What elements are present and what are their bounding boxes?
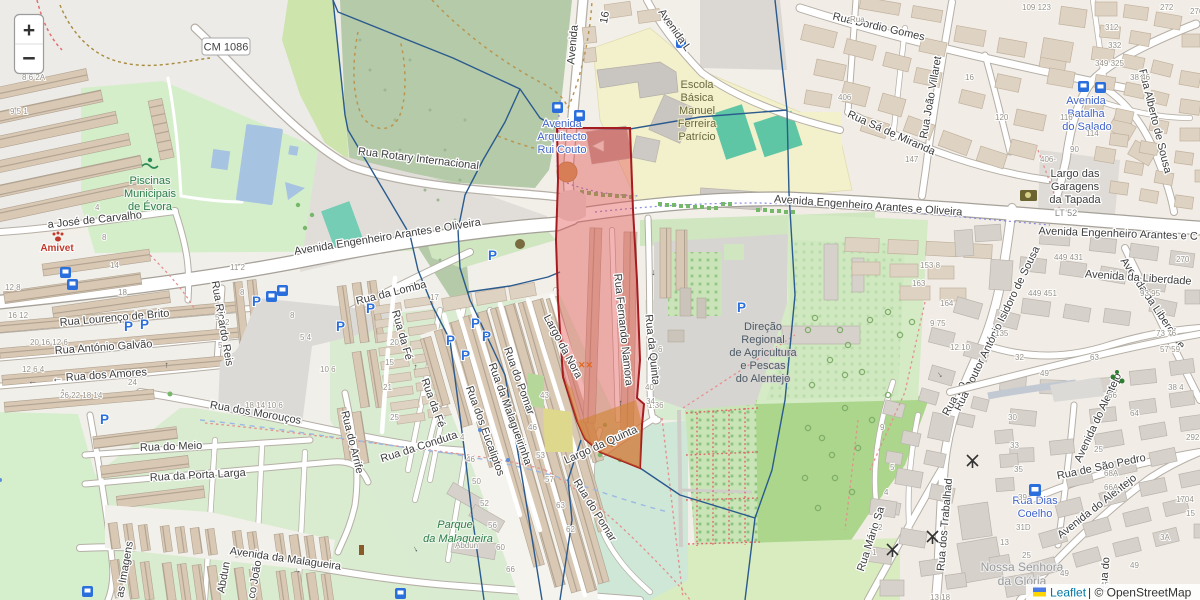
svg-text:12 8: 12 8: [5, 283, 21, 292]
svg-text:153 8: 153 8: [920, 261, 941, 270]
svg-text:5: 5: [218, 341, 223, 350]
svg-text:Arquitecto: Arquitecto: [537, 131, 587, 143]
svg-text:25: 25: [1022, 551, 1031, 560]
svg-text:120: 120: [995, 113, 1009, 122]
svg-text:12 6 4: 12 6 4: [22, 365, 45, 374]
svg-text:4: 4: [95, 203, 100, 212]
svg-text:Rua do Meio: Rua do Meio: [140, 440, 203, 454]
svg-text:56: 56: [488, 521, 497, 530]
svg-text:38 46: 38 46: [1130, 73, 1151, 82]
svg-text:e Pescas: e Pescas: [740, 360, 786, 372]
svg-text:Patrício: Patrício: [678, 131, 715, 143]
svg-text:P: P: [252, 294, 261, 309]
svg-text:13 18: 13 18: [930, 593, 951, 600]
svg-text:114: 114: [1086, 129, 1099, 138]
svg-text:P: P: [471, 316, 480, 331]
svg-text:→: →: [408, 362, 419, 373]
svg-text:Regional: Regional: [741, 334, 784, 346]
svg-text:Municipais: Municipais: [124, 188, 176, 200]
svg-text:P: P: [461, 348, 470, 363]
svg-text:9 75: 9 75: [930, 319, 946, 328]
svg-text:9 5 1: 9 5 1: [10, 107, 28, 116]
svg-text:38 4: 38 4: [1168, 383, 1184, 392]
svg-text:63: 63: [1090, 353, 1099, 362]
svg-text:62: 62: [566, 525, 575, 534]
svg-text:LT 52: LT 52: [1055, 208, 1077, 218]
svg-text:→: →: [160, 361, 170, 370]
svg-text:31D: 31D: [1016, 523, 1031, 532]
svg-text:312: 312: [1105, 23, 1119, 32]
svg-text:32: 32: [1015, 353, 1024, 362]
svg-text:6: 6: [658, 345, 663, 354]
svg-text:→: →: [292, 565, 301, 575]
svg-text:18 14 10 6: 18 14 10 6: [245, 401, 283, 410]
svg-text:93 95: 93 95: [1140, 289, 1161, 298]
svg-text:1704: 1704: [1176, 495, 1194, 504]
svg-text:49: 49: [1060, 569, 1069, 578]
svg-text:2: 2: [225, 318, 230, 327]
svg-text:P: P: [140, 317, 149, 332]
svg-text:Ferreira: Ferreira: [678, 118, 717, 130]
svg-text:109 123: 109 123: [1022, 3, 1051, 12]
svg-text:57: 57: [545, 475, 554, 484]
svg-text:34: 34: [646, 397, 655, 406]
svg-text:→: →: [650, 268, 660, 277]
svg-text:60: 60: [496, 543, 505, 552]
svg-text:272: 272: [1160, 3, 1174, 12]
svg-text:CM 1086: CM 1086: [204, 42, 249, 54]
svg-text:Direção: Direção: [744, 321, 782, 333]
svg-text:35: 35: [1014, 465, 1023, 474]
svg-text:25: 25: [1094, 445, 1103, 454]
svg-text:P: P: [124, 319, 133, 334]
svg-text:Rua: Rua: [850, 15, 865, 24]
svg-text:Nossa Senhora: Nossa Senhora: [981, 560, 1064, 574]
svg-text:Abdun: Abdun: [455, 541, 478, 550]
svg-text:P: P: [100, 412, 109, 427]
svg-text:→: →: [614, 399, 624, 408]
svg-text:20: 20: [390, 338, 399, 347]
svg-text:P: P: [482, 329, 491, 344]
svg-text:Avenida: Avenida: [1066, 95, 1106, 107]
svg-text:16 12: 16 12: [8, 311, 29, 320]
svg-text:25: 25: [390, 413, 399, 422]
svg-text:26 22 18 14: 26 22 18 14: [60, 391, 103, 400]
svg-text:64: 64: [1130, 409, 1139, 418]
svg-text:116: 116: [1060, 113, 1073, 122]
svg-text:53: 53: [536, 451, 545, 460]
svg-text:449 451: 449 451: [1028, 289, 1057, 298]
svg-text:−: −: [22, 45, 35, 71]
svg-text:Leaflet: Leaflet: [1050, 586, 1087, 600]
svg-text:4: 4: [884, 488, 889, 497]
svg-text:Amivet: Amivet: [40, 243, 74, 254]
svg-text:8: 8: [240, 288, 245, 297]
svg-text:5: 5: [890, 463, 895, 472]
svg-text:30: 30: [1008, 413, 1017, 422]
svg-text:147: 147: [905, 155, 919, 164]
svg-text:276: 276: [1190, 7, 1200, 16]
svg-text:66: 66: [1108, 391, 1117, 400]
svg-text:332: 332: [1108, 41, 1122, 50]
svg-text:63: 63: [556, 501, 565, 510]
svg-text:16: 16: [965, 73, 974, 82]
svg-text:406-: 406-: [1040, 155, 1056, 164]
svg-text:20 16 12 6: 20 16 12 6: [30, 338, 68, 347]
svg-text:de Agricultura: de Agricultura: [729, 347, 797, 359]
svg-text:9: 9: [880, 423, 885, 432]
svg-text:406: 406: [838, 93, 852, 102]
svg-text:Garagens: Garagens: [1051, 181, 1100, 193]
svg-text:21: 21: [383, 383, 392, 392]
svg-text:66: 66: [506, 565, 515, 574]
svg-text:349 325: 349 325: [1095, 59, 1124, 68]
svg-text:da Tapada: da Tapada: [1049, 194, 1101, 206]
svg-text:P: P: [488, 248, 497, 263]
svg-text:8: 8: [290, 311, 295, 320]
svg-text:5: 5: [215, 313, 220, 322]
svg-text:68A: 68A: [1104, 469, 1119, 478]
svg-text:39: 39: [1018, 493, 1027, 502]
svg-text:40: 40: [645, 383, 654, 392]
svg-text:46: 46: [466, 455, 475, 464]
svg-text:P: P: [366, 301, 375, 316]
svg-text:do Alentejo: do Alentejo: [736, 373, 790, 385]
svg-text:14: 14: [110, 261, 119, 270]
svg-text:270: 270: [1176, 255, 1190, 264]
svg-text:Básica: Básica: [680, 92, 714, 104]
svg-text:Parque: Parque: [437, 519, 472, 531]
svg-text:de Évora: de Évora: [128, 200, 173, 213]
svg-text:11 2: 11 2: [230, 263, 246, 272]
svg-text:Manuel: Manuel: [679, 105, 715, 117]
svg-text:+: +: [23, 19, 35, 42]
svg-text:18: 18: [118, 288, 127, 297]
svg-text:49: 49: [1130, 561, 1139, 570]
svg-text:8 6 2A: 8 6 2A: [22, 73, 46, 82]
svg-text:3A: 3A: [1160, 533, 1170, 542]
svg-text:Piscinas: Piscinas: [130, 175, 171, 187]
svg-text:8: 8: [102, 233, 107, 242]
svg-text:43: 43: [540, 391, 549, 400]
svg-text:Largo das: Largo das: [1051, 168, 1100, 180]
svg-text:Coelho: Coelho: [1018, 508, 1053, 520]
svg-text:10 6: 10 6: [320, 365, 336, 374]
svg-text:33: 33: [1010, 441, 1019, 450]
svg-text:24: 24: [128, 378, 137, 387]
svg-text:| © OpenStreetMap: | © OpenStreetMap: [1088, 586, 1192, 600]
svg-text:P: P: [737, 300, 746, 315]
svg-text:←: ←: [28, 376, 37, 386]
svg-text:52: 52: [480, 499, 489, 508]
svg-text:50: 50: [472, 477, 481, 486]
svg-text:57 59: 57 59: [1160, 345, 1181, 354]
svg-text:135: 135: [995, 329, 1009, 338]
svg-text:P: P: [336, 319, 345, 334]
svg-text:292: 292: [1186, 433, 1200, 442]
svg-text:16: 16: [598, 10, 612, 24]
svg-text:49: 49: [1040, 369, 1049, 378]
svg-text:Escola: Escola: [680, 79, 714, 91]
svg-text:163: 163: [912, 279, 926, 288]
svg-text:90: 90: [1070, 145, 1079, 154]
svg-text:73 76: 73 76: [1156, 329, 1177, 338]
svg-text:15: 15: [1186, 509, 1195, 518]
svg-text:46: 46: [528, 423, 537, 432]
svg-text:✕✕: ✕✕: [578, 360, 593, 370]
svg-text:12.10: 12.10: [950, 343, 971, 352]
svg-text:13: 13: [1000, 538, 1009, 547]
svg-text:17: 17: [430, 293, 439, 302]
svg-text:66A: 66A: [1104, 483, 1119, 492]
svg-text:164: 164: [940, 299, 954, 308]
svg-text:Rui Couto: Rui Couto: [538, 144, 587, 156]
svg-text:449 431: 449 431: [1054, 253, 1083, 262]
svg-text:5 4: 5 4: [300, 333, 312, 342]
svg-text:P: P: [446, 333, 455, 348]
svg-text:15: 15: [385, 358, 394, 367]
svg-text:1: 1: [872, 548, 877, 557]
svg-text:2: 2: [878, 523, 883, 532]
svg-text:Batalha: Batalha: [1067, 108, 1105, 120]
svg-text:4: 4: [460, 433, 465, 442]
